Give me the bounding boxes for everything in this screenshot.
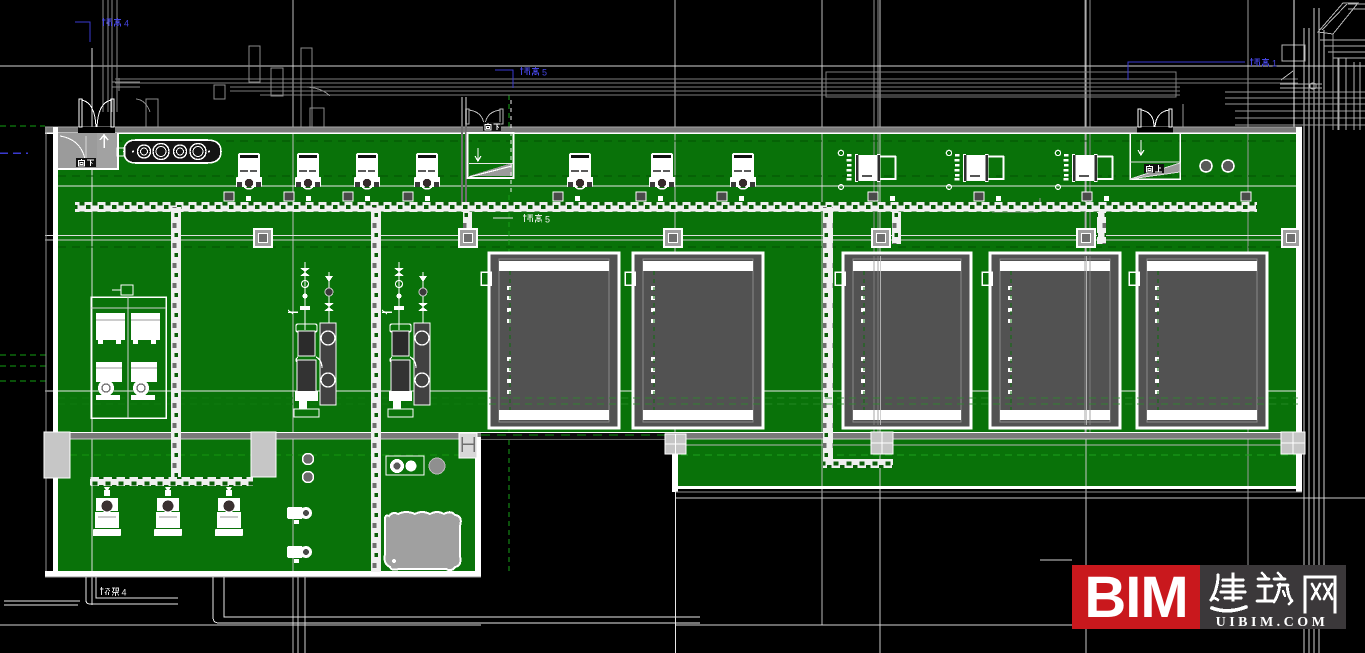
- svg-text:1: 1: [1272, 59, 1277, 69]
- svg-text:5: 5: [542, 68, 547, 78]
- svg-text:4: 4: [122, 588, 127, 598]
- svg-text:BIM: BIM: [1084, 565, 1187, 630]
- svg-text:4: 4: [124, 19, 129, 29]
- svg-text:5: 5: [545, 215, 550, 225]
- svg-text:UIBIM.COM: UIBIM.COM: [1216, 615, 1329, 630]
